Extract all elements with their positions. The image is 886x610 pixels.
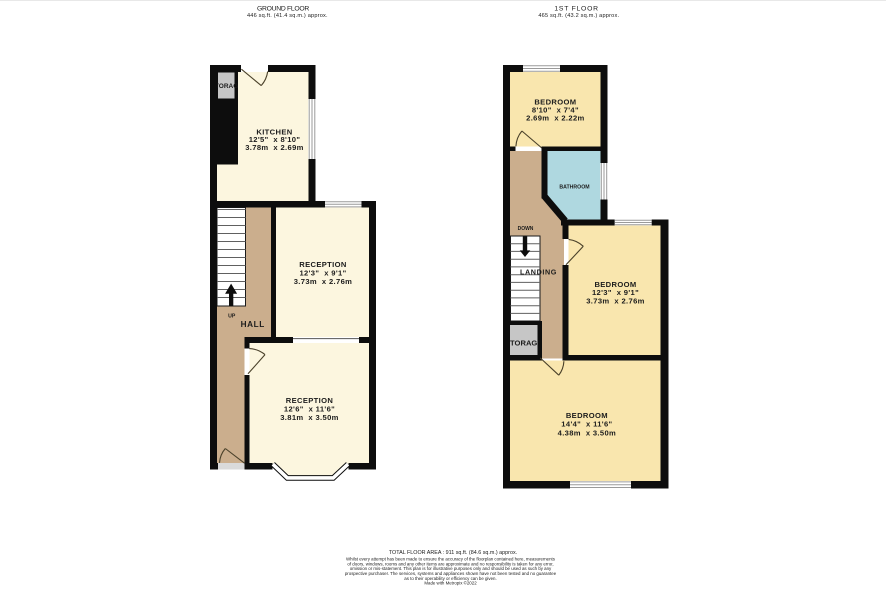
- svg-text:TOTAL FLOOR AREA : 911 sq.ft.: TOTAL FLOOR AREA : 911 sq.ft. (84.6 sq.m…: [389, 550, 517, 556]
- svg-text:GROUND FLOOR: GROUND FLOOR: [257, 6, 309, 13]
- svg-text:Made with Metropix ©2022: Made with Metropix ©2022: [424, 581, 477, 586]
- svg-text:14'4" x 11'6": 14'4" x 11'6": [561, 420, 612, 429]
- svg-text:TORAG: TORAG: [510, 338, 537, 347]
- svg-text:3.81m x 3.50m: 3.81m x 3.50m: [280, 413, 339, 422]
- svg-text:465 sq.ft. (43.2 sq.m.) approx: 465 sq.ft. (43.2 sq.m.) approx.: [538, 13, 619, 19]
- svg-text:HALL: HALL: [241, 320, 265, 329]
- svg-text:BATHROOM: BATHROOM: [559, 185, 589, 191]
- svg-text:2.69m x 2.22m: 2.69m x 2.22m: [526, 114, 585, 123]
- svg-text:4.38m x 3.50m: 4.38m x 3.50m: [558, 428, 617, 437]
- svg-text:DOWN: DOWN: [518, 226, 534, 232]
- svg-text:1ST FLOOR: 1ST FLOOR: [554, 6, 598, 13]
- svg-text:3.78m x 2.69m: 3.78m x 2.69m: [245, 143, 304, 152]
- svg-text:3.73m x 2.76m: 3.73m x 2.76m: [586, 296, 645, 305]
- svg-text:446 sq.ft. (41.4 sq.m.) approx: 446 sq.ft. (41.4 sq.m.) approx.: [247, 13, 328, 19]
- svg-text:TORAG: TORAG: [215, 83, 238, 90]
- svg-text:LANDING: LANDING: [520, 268, 557, 277]
- svg-text:UP: UP: [228, 314, 236, 320]
- svg-text:3.73m x 2.76m: 3.73m x 2.76m: [294, 277, 353, 286]
